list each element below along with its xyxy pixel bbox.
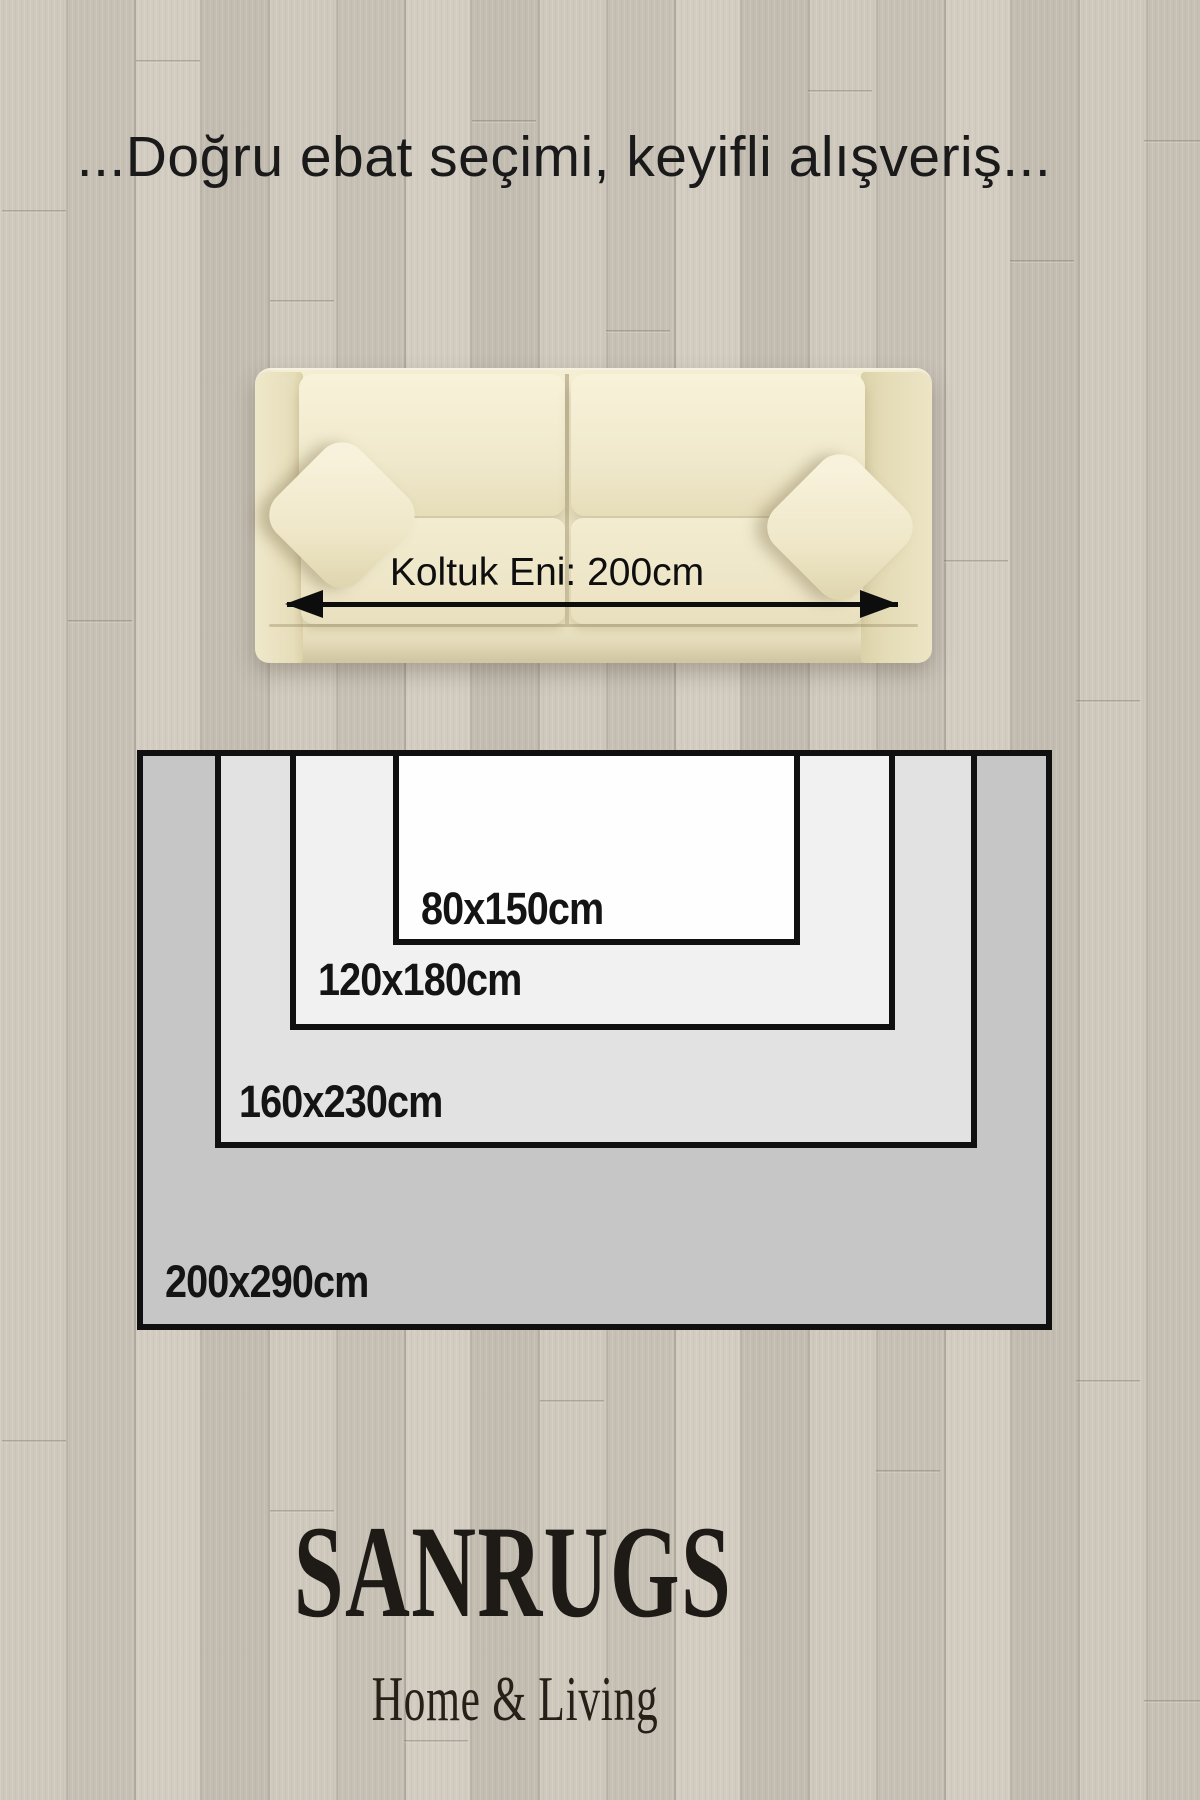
- rug-rect-80x150: 80x150cm: [393, 750, 800, 945]
- sofa-front-crease: [269, 624, 918, 627]
- page-title: ...Doğru ebat seçimi, keyifli alışveriş.…: [77, 124, 1051, 190]
- arrowhead-right-icon: [860, 590, 898, 618]
- rug-size-label: 160x230cm: [239, 1079, 442, 1124]
- brand-tagline: Home & Living: [372, 1664, 659, 1734]
- sofa-top-view: [255, 368, 932, 663]
- dimension-arrow-line: [287, 602, 898, 607]
- rug-size-label: 120x180cm: [318, 957, 521, 1002]
- arrowhead-left-icon: [285, 590, 323, 618]
- rug-size-label: 200x290cm: [165, 1259, 368, 1304]
- brand-logo-text: SANRUGS: [294, 1506, 732, 1638]
- sofa-width-label: Koltuk Eni: 200cm: [390, 551, 704, 595]
- rug-size-label: 80x150cm: [421, 886, 603, 931]
- rug-size-guide-infographic: ...Doğru ebat seçimi, keyifli alışveriş.…: [0, 0, 1200, 1800]
